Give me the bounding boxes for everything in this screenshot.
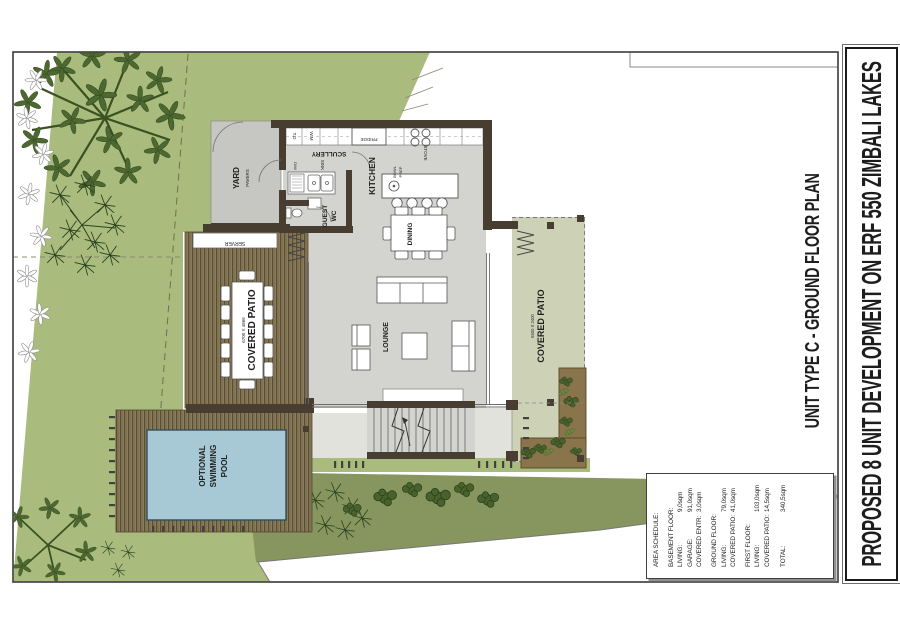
area-schedule-box: AREA SCHEDULE: BASEMENT FLOOR: LIVING:9,… bbox=[646, 473, 834, 579]
area-schedule: AREA SCHEDULE: BASEMENT FLOOR: LIVING:9,… bbox=[647, 474, 829, 574]
patio-right-dim: 6500 X 2400 bbox=[530, 313, 535, 337]
scullery-label: SCULLERY bbox=[311, 150, 346, 157]
yard-label: YARD bbox=[232, 167, 241, 189]
stove-label: STOVE bbox=[423, 145, 428, 160]
drawing-title: UNIT TYPE C - GROUND FLOOR PLAN bbox=[802, 173, 825, 428]
schedule-row: COVERED PATIO:14,5sqm bbox=[763, 478, 773, 567]
neighbour-boundary-line bbox=[630, 53, 838, 67]
schedule-row: LIVING:103,0sqm bbox=[753, 478, 763, 567]
schedule-row: AREA SCHEDULE: bbox=[652, 478, 662, 567]
pool-label-3: POOL bbox=[220, 455, 229, 478]
bowl-prep-label-2: PREP bbox=[398, 166, 403, 177]
patio-left-dim: 6700 X 4866 bbox=[241, 317, 246, 343]
schedule-row: FIRST FLOOR: bbox=[744, 478, 754, 567]
dining-set bbox=[383, 207, 455, 259]
server-label: SERVER bbox=[224, 240, 245, 246]
schedule-row: LIVING:9,0sqm bbox=[676, 478, 686, 567]
yard-sub-label: PAVERS bbox=[245, 169, 250, 187]
side-terrace-left bbox=[312, 413, 367, 458]
wm-label: W.M bbox=[309, 132, 314, 141]
lounge-label: LOUNGE bbox=[383, 322, 390, 352]
side-terrace-right bbox=[475, 408, 512, 458]
dishwasher bbox=[290, 174, 304, 192]
patio-right-label: COVERED PATIO bbox=[536, 289, 546, 362]
fridge-label: FRIDGE bbox=[360, 137, 377, 142]
sink-label: SINK bbox=[320, 160, 325, 171]
schedule-row: COVERED PATIO:41,0sqm bbox=[729, 478, 739, 567]
schedule-row: GARAGE:91,0sqm bbox=[686, 478, 696, 567]
schedule-row-total: TOTAL:340,5sqm bbox=[779, 478, 789, 567]
guest-wc-label-1: GUEST bbox=[322, 205, 329, 227]
guest-wc-label-2: WC bbox=[331, 210, 338, 221]
dining-label: DINING bbox=[407, 223, 414, 246]
pool-label-1: OPTIONAL bbox=[198, 445, 207, 486]
schedule-row: BASEMENT FLOOR: bbox=[667, 478, 677, 567]
dw-label: D/W bbox=[293, 162, 298, 170]
patio-left-label: COVERED PATIO bbox=[247, 289, 258, 371]
bowl-prep-label-1: BOWL bbox=[392, 165, 397, 178]
coffee-table bbox=[402, 333, 427, 359]
toilet bbox=[286, 208, 302, 218]
project-title: PROPOSED 8 UNIT DEVELOPMENT ON ERF 550 Z… bbox=[856, 61, 888, 566]
schedule-row: LIVING:79,0sqm bbox=[720, 478, 730, 567]
kitchen-label: KITCHEN bbox=[367, 157, 377, 195]
drawing-title-block: UNIT TYPE C - GROUND FLOOR PLAN bbox=[791, 156, 835, 446]
schedule-row: COVERED ENTR:3,0sqm bbox=[695, 478, 705, 567]
pool-label-2: SWIMMING bbox=[209, 445, 218, 488]
td-label: T.D bbox=[292, 133, 297, 141]
project-title-block: PROPOSED 8 UNIT DEVELOPMENT ON ERF 550 Z… bbox=[845, 47, 898, 581]
schedule-row: GROUND FLOOR: bbox=[710, 478, 720, 567]
kitchen-counter bbox=[286, 128, 483, 146]
drawing-sheet: YARD KITCHEN LOUNGE DINING PAVERS SCULLE… bbox=[0, 0, 900, 636]
stairwell-floor bbox=[367, 401, 475, 459]
